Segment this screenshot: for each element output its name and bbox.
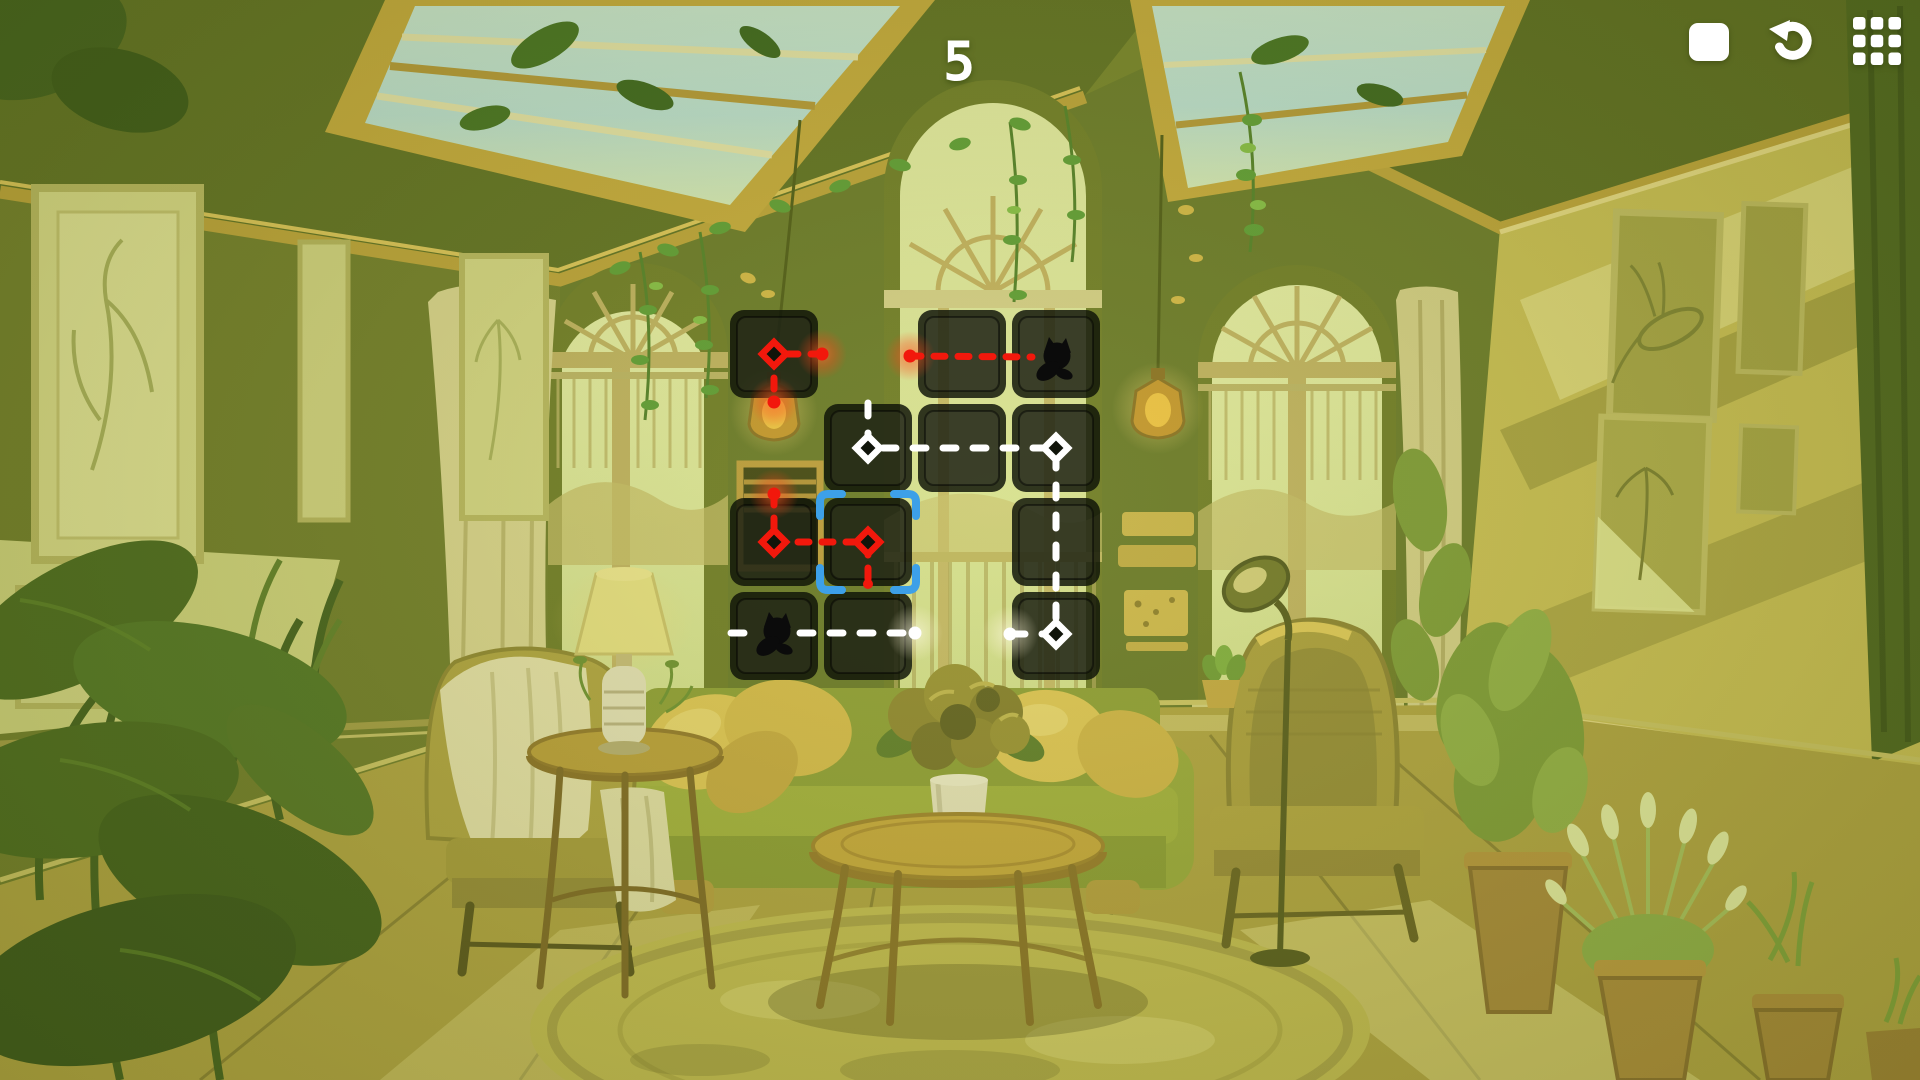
toolbar bbox=[1680, 10, 1906, 72]
path-endpoint-dot bbox=[909, 627, 922, 640]
path-endpoint-dot bbox=[1004, 628, 1017, 641]
undo-arrow-icon bbox=[1767, 15, 1819, 67]
path-endpoint-dot bbox=[904, 350, 917, 363]
game-screen: 5 bbox=[0, 0, 1920, 1080]
path-endpoint-dot bbox=[768, 488, 781, 501]
square-icon bbox=[1684, 16, 1734, 66]
levels-button[interactable] bbox=[1848, 10, 1906, 72]
puzzle-board bbox=[0, 0, 1920, 1080]
undo-button[interactable] bbox=[1764, 10, 1822, 72]
square-button[interactable] bbox=[1680, 10, 1738, 72]
path-endpoint-dot bbox=[768, 396, 781, 409]
grid-icon bbox=[1853, 17, 1901, 65]
board-tile[interactable] bbox=[918, 404, 1006, 492]
path-endpoint-dot bbox=[863, 579, 873, 589]
path-endpoint-dot bbox=[816, 348, 829, 361]
